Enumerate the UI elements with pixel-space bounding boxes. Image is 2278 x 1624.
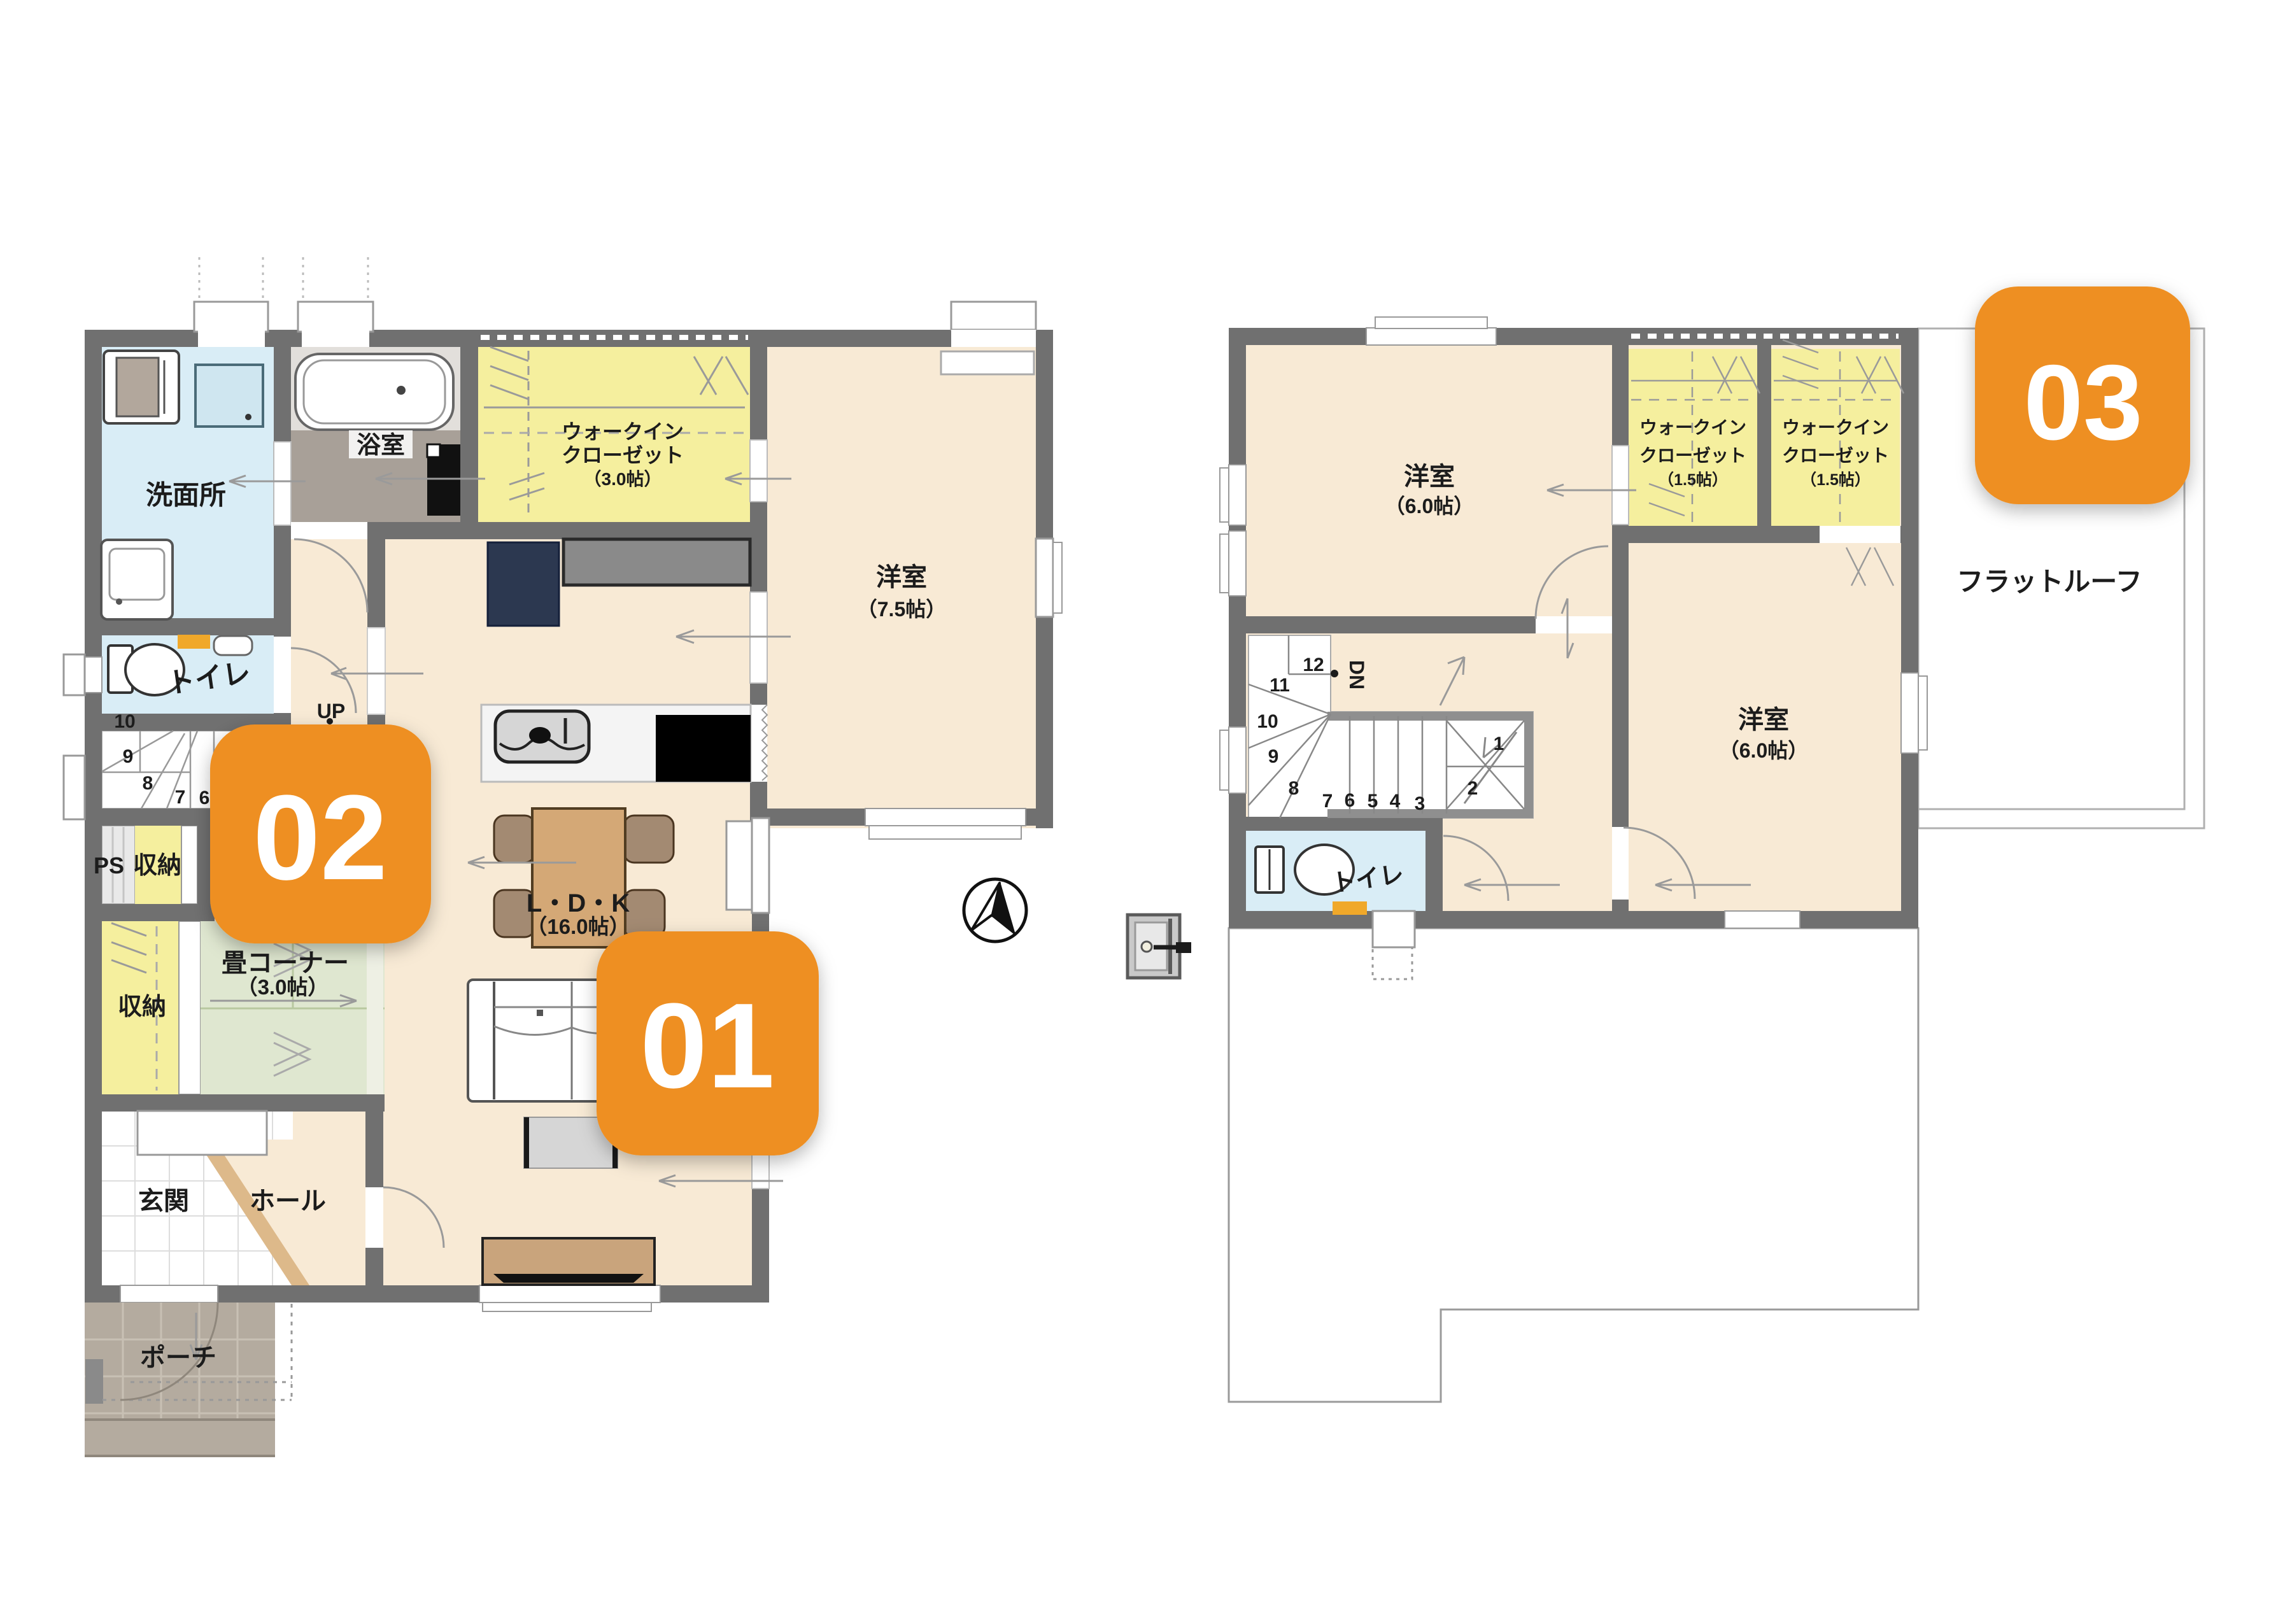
svg-text:01: 01 xyxy=(640,978,774,1113)
svg-text:2: 2 xyxy=(1468,778,1478,799)
svg-text:7: 7 xyxy=(175,787,186,808)
svg-text:4: 4 xyxy=(1390,791,1401,812)
svg-text:ホール: ホール xyxy=(250,1187,326,1215)
svg-text:9: 9 xyxy=(1268,746,1279,767)
svg-text:（7.5帖）: （7.5帖） xyxy=(857,598,947,621)
svg-text:3: 3 xyxy=(1415,793,1426,814)
svg-text:12: 12 xyxy=(1303,654,1324,675)
svg-text:PS: PS xyxy=(94,852,124,879)
svg-text:L・D・K: L・D・K xyxy=(527,889,630,917)
svg-text:6: 6 xyxy=(199,787,210,808)
svg-text:（16.0帖）: （16.0帖） xyxy=(526,915,630,938)
svg-text:6: 6 xyxy=(1345,790,1355,811)
svg-text:02: 02 xyxy=(253,770,387,905)
svg-text:フラットルーフ: フラットルーフ xyxy=(1956,567,2142,597)
svg-text:ウォークイン: ウォークイン xyxy=(562,420,684,443)
svg-text:洋室: 洋室 xyxy=(1738,706,1789,734)
svg-text:玄関: 玄関 xyxy=(138,1187,189,1215)
svg-text:浴室: 浴室 xyxy=(357,432,405,459)
svg-text:8: 8 xyxy=(143,773,153,794)
svg-text:（1.5帖）: （1.5帖） xyxy=(1800,470,1871,489)
svg-text:（6.0帖）: （6.0帖） xyxy=(1719,739,1809,762)
svg-text:畳コーナー: 畳コーナー xyxy=(222,949,349,977)
svg-text:洋室: 洋室 xyxy=(1404,463,1455,491)
svg-text:洗面所: 洗面所 xyxy=(146,480,226,510)
svg-text:DN: DN xyxy=(1345,660,1368,689)
svg-text:クローゼット: クローゼット xyxy=(1639,446,1746,465)
svg-text:（1.5帖）: （1.5帖） xyxy=(1658,470,1728,489)
svg-text:ポーチ: ポーチ xyxy=(140,1344,216,1372)
svg-text:10: 10 xyxy=(1257,711,1278,732)
svg-text:（6.0帖）: （6.0帖） xyxy=(1385,495,1475,518)
svg-text:5: 5 xyxy=(1368,791,1378,812)
svg-text:クローゼット: クローゼット xyxy=(562,444,684,467)
svg-text:1: 1 xyxy=(1494,733,1504,754)
svg-text:03: 03 xyxy=(2024,342,2143,462)
svg-text:7: 7 xyxy=(1322,791,1333,812)
svg-text:洋室: 洋室 xyxy=(876,563,927,591)
svg-text:9: 9 xyxy=(123,746,134,767)
svg-text:8: 8 xyxy=(1289,778,1299,799)
svg-text:10: 10 xyxy=(114,711,135,732)
svg-text:収納: 収納 xyxy=(118,994,166,1020)
svg-text:11: 11 xyxy=(1270,675,1290,696)
svg-text:クローゼット: クローゼット xyxy=(1782,446,1889,465)
svg-text:ウォークイン: ウォークイン xyxy=(1782,418,1889,437)
svg-text:（3.0帖）: （3.0帖） xyxy=(237,975,329,999)
svg-text:（3.0帖）: （3.0帖） xyxy=(584,469,662,489)
svg-text:ウォークイン: ウォークイン xyxy=(1639,418,1746,437)
svg-text:収納: 収納 xyxy=(133,852,181,879)
